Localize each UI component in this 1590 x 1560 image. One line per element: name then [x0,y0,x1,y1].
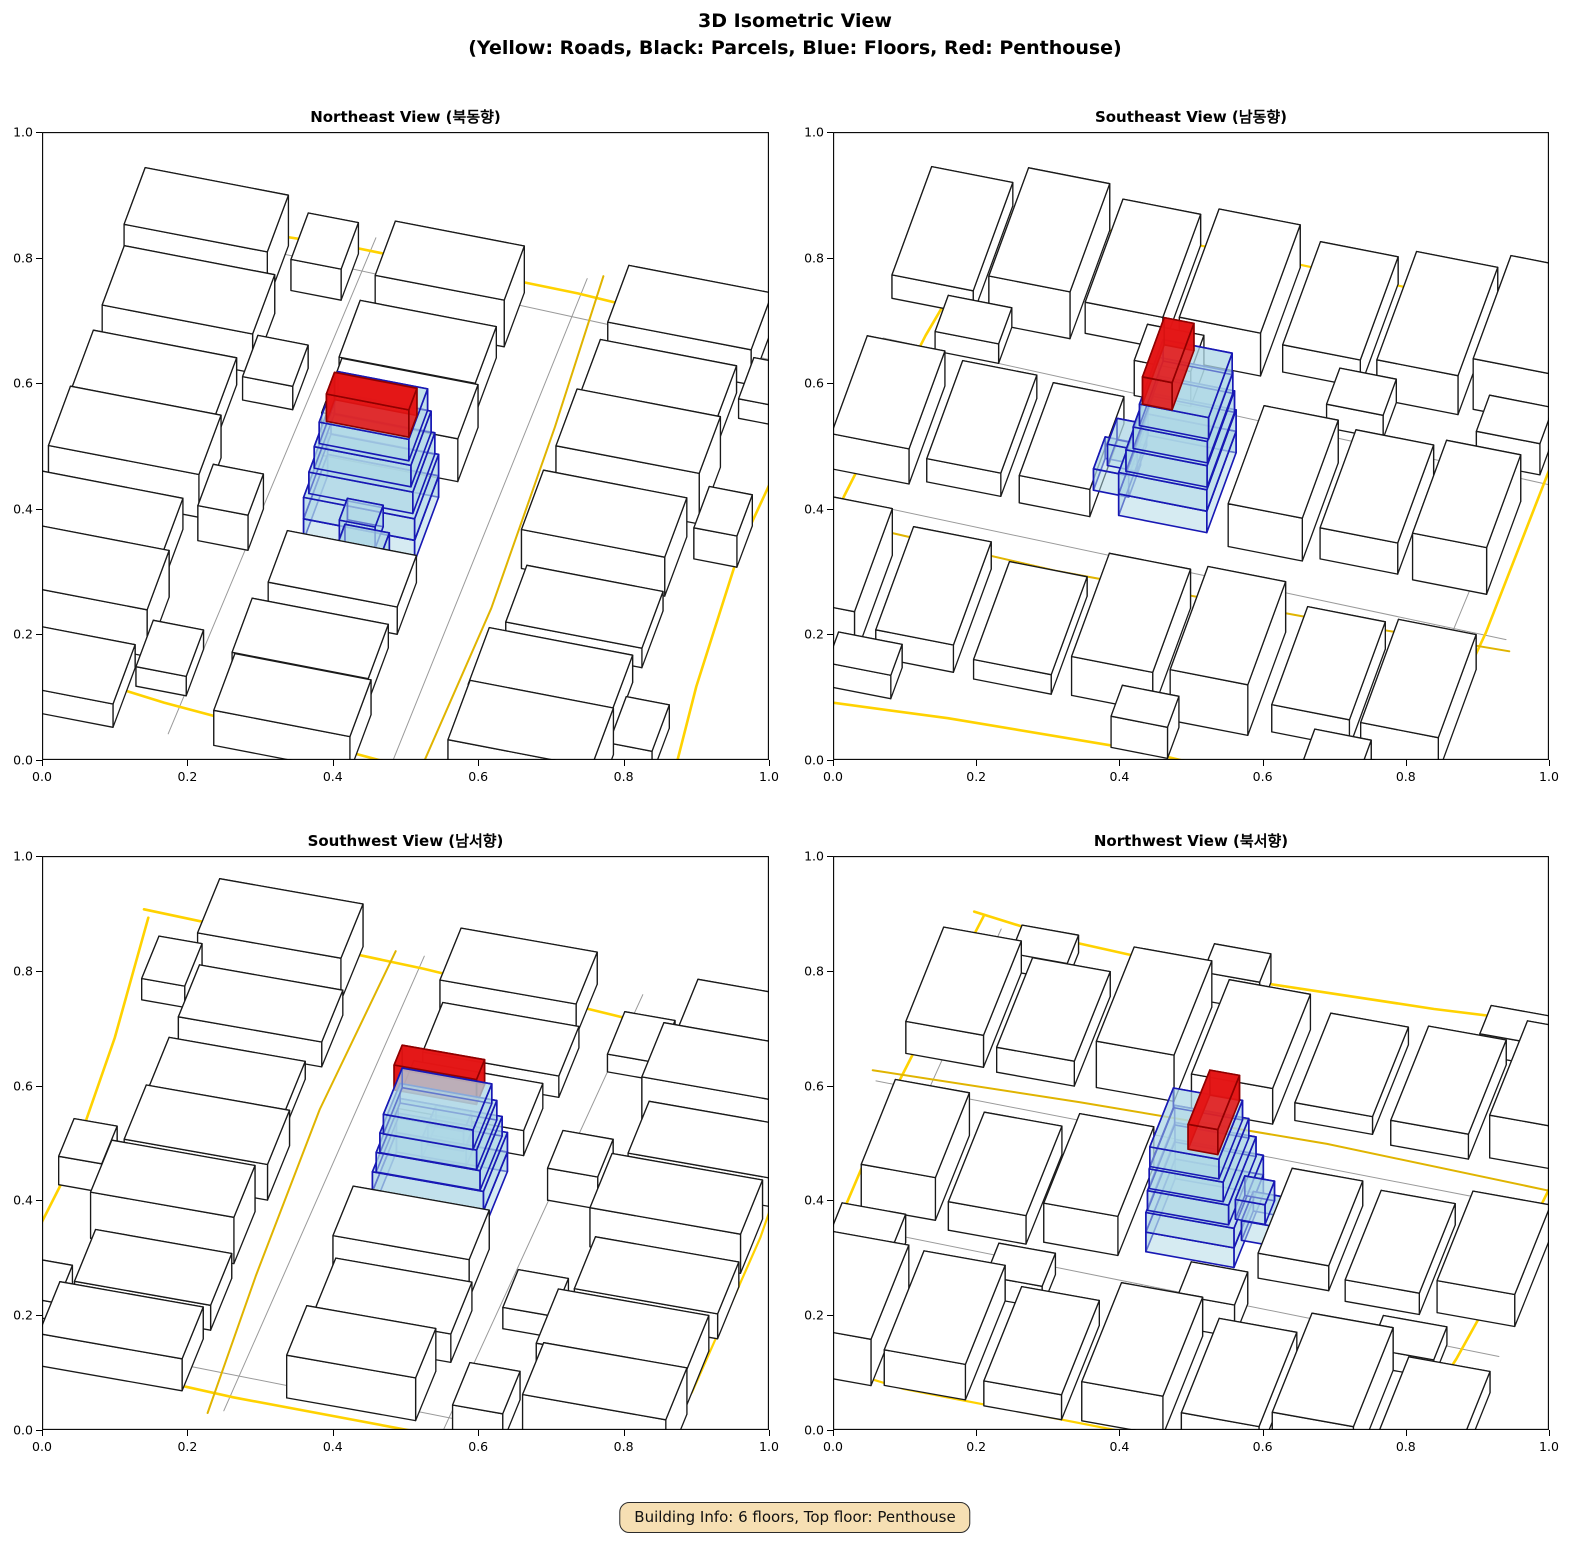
y-tick-mark [827,132,833,133]
y-tick-label: 0.0 [13,1423,33,1438]
x-tick-mark [976,1430,977,1436]
x-tick-mark [333,1430,334,1436]
y-tick-mark [827,760,833,761]
x-tick-mark [1263,1430,1264,1436]
x-tick-label: 0.2 [177,769,197,784]
y-tick-mark [36,1086,42,1087]
y-tick-mark [827,634,833,635]
y-tick-label: 0.6 [804,376,824,391]
y-tick-label: 0.2 [804,627,824,642]
y-tick-label: 0.8 [13,250,33,265]
plot-canvas-southwest [42,856,769,1430]
y-tick-mark [36,132,42,133]
subplot-title-southwest: Southwest View (남서향) [42,830,769,851]
y-tick-mark [36,856,42,857]
figure-title-line2: (Yellow: Roads, Black: Parcels, Blue: Fl… [0,35,1590,62]
x-tick-mark [1119,760,1120,766]
x-tick-label: 0.6 [1253,769,1273,784]
figure-title-line1: 3D Isometric View [0,8,1590,35]
x-tick-label: 0.6 [468,769,488,784]
y-tick-label: 0.0 [13,753,33,768]
x-tick-label: 0.8 [1396,769,1416,784]
y-tick-label: 1.0 [13,849,33,864]
x-tick-mark [976,760,977,766]
x-tick-label: 0.0 [32,769,52,784]
y-tick-mark [827,1315,833,1316]
y-tick-mark [36,509,42,510]
y-tick-label: 0.8 [13,963,33,978]
x-tick-label: 0.2 [966,1439,986,1454]
y-tick-label: 0.2 [804,1308,824,1323]
y-tick-mark [827,383,833,384]
x-tick-label: 0.8 [614,1439,634,1454]
y-tick-mark [827,1086,833,1087]
x-tick-mark [1263,760,1264,766]
x-tick-label: 1.0 [1539,769,1559,784]
y-tick-label: 0.6 [804,1078,824,1093]
subplot-southeast: Southeast View (남동향) 0.00.00.20.20.40.40… [833,132,1549,760]
x-tick-mark [187,760,188,766]
y-tick-label: 0.2 [13,627,33,642]
y-tick-mark [827,258,833,259]
y-tick-label: 0.4 [804,501,824,516]
y-tick-label: 1.0 [13,125,33,140]
x-tick-mark [42,1430,43,1436]
x-tick-mark [769,1430,770,1436]
y-tick-label: 0.4 [804,1193,824,1208]
subplot-southwest: Southwest View (남서향) 0.00.00.20.20.40.40… [42,856,769,1430]
subplot-title-northwest: Northwest View (북서향) [833,830,1549,851]
y-tick-label: 0.4 [13,1193,33,1208]
y-tick-mark [36,760,42,761]
y-tick-mark [827,509,833,510]
x-tick-mark [624,760,625,766]
x-tick-mark [1406,760,1407,766]
x-tick-label: 0.6 [1253,1439,1273,1454]
y-tick-mark [827,1200,833,1201]
y-tick-mark [36,1430,42,1431]
y-tick-mark [36,634,42,635]
x-tick-mark [478,1430,479,1436]
x-tick-label: 0.4 [1109,769,1129,784]
x-tick-mark [1406,1430,1407,1436]
x-tick-mark [1549,1430,1550,1436]
y-tick-label: 0.8 [804,963,824,978]
y-tick-mark [36,1200,42,1201]
y-tick-label: 0.4 [13,501,33,516]
x-tick-mark [187,1430,188,1436]
x-tick-label: 0.2 [177,1439,197,1454]
building-info-badge: Building Info: 6 floors, Top floor: Pent… [619,1502,970,1533]
x-tick-mark [1119,1430,1120,1436]
y-tick-label: 0.6 [13,376,33,391]
y-tick-label: 1.0 [804,125,824,140]
y-tick-label: 0.0 [804,1423,824,1438]
subplot-northeast: Northeast View (북동향) 0.00.00.20.20.40.40… [42,132,769,760]
x-tick-label: 0.4 [323,1439,343,1454]
x-tick-label: 0.4 [1109,1439,1129,1454]
plot-canvas-northeast [42,132,769,760]
x-tick-mark [1549,760,1550,766]
x-tick-label: 0.0 [32,1439,52,1454]
x-tick-label: 1.0 [759,769,779,784]
x-tick-label: 0.8 [614,769,634,784]
x-tick-mark [478,760,479,766]
x-tick-mark [769,760,770,766]
x-tick-mark [833,1430,834,1436]
figure-title: 3D Isometric View (Yellow: Roads, Black:… [0,8,1590,61]
x-tick-label: 0.0 [823,769,843,784]
x-tick-mark [833,760,834,766]
plot-canvas-northwest [833,856,1549,1430]
x-tick-label: 0.4 [323,769,343,784]
y-tick-mark [827,971,833,972]
subplot-title-southeast: Southeast View (남동향) [833,106,1549,127]
y-tick-label: 0.2 [13,1308,33,1323]
figure: 3D Isometric View (Yellow: Roads, Black:… [0,0,1590,1560]
y-tick-label: 0.6 [13,1078,33,1093]
y-tick-label: 0.0 [804,753,824,768]
subplot-title-northeast: Northeast View (북동향) [42,106,769,127]
y-tick-mark [827,856,833,857]
y-tick-mark [36,971,42,972]
x-tick-label: 0.2 [966,769,986,784]
x-tick-mark [333,760,334,766]
y-tick-mark [36,1315,42,1316]
y-tick-mark [36,258,42,259]
y-tick-label: 0.8 [804,250,824,265]
x-tick-label: 1.0 [1539,1439,1559,1454]
plot-canvas-southeast [833,132,1549,760]
x-tick-label: 0.0 [823,1439,843,1454]
x-tick-mark [42,760,43,766]
y-tick-mark [827,1430,833,1431]
x-tick-mark [624,1430,625,1436]
y-tick-label: 1.0 [804,849,824,864]
y-tick-mark [36,383,42,384]
x-tick-label: 1.0 [759,1439,779,1454]
x-tick-label: 0.6 [468,1439,488,1454]
x-tick-label: 0.8 [1396,1439,1416,1454]
subplot-northwest: Northwest View (북서향) 0.00.00.20.20.40.40… [833,856,1549,1430]
